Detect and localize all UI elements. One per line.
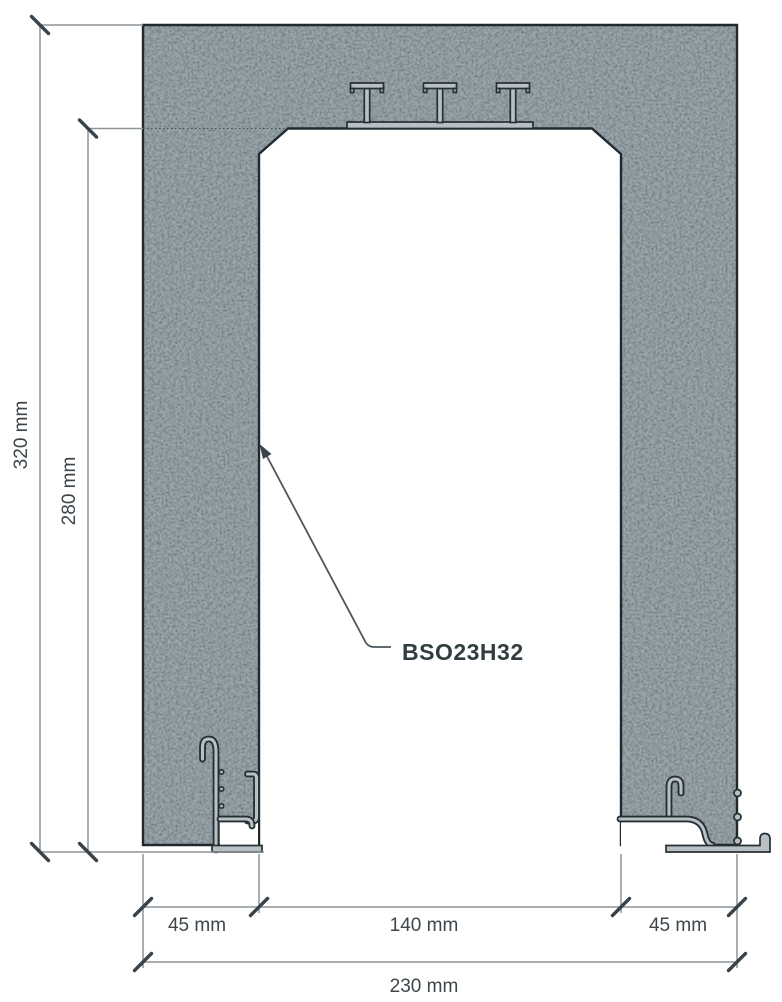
dim-label-overall-width: 230 mm xyxy=(390,976,459,997)
dim-label-right-jamb: 45 mm xyxy=(649,915,707,936)
leader-line xyxy=(262,447,391,647)
t-stud-center-lip-a xyxy=(424,89,427,93)
left-rail-bump-2 xyxy=(219,787,223,791)
t-stud-center-lip-b xyxy=(453,89,456,93)
t-stud-left-lip-a xyxy=(351,89,354,93)
dimension-bottom-widths: 45 mm 140 mm 45 mm 230 mm xyxy=(135,854,746,997)
t-stud-left-web xyxy=(364,89,369,123)
concrete-section xyxy=(143,25,737,845)
left-base-plate xyxy=(212,846,262,853)
dim-label-opening-width: 140 mm xyxy=(390,915,459,936)
left-rail-bump-3 xyxy=(219,804,223,808)
diagram-canvas: 320 mm 280 mm 45 mm 140 mm 45 mm 230 mm … xyxy=(0,0,782,1002)
right-edge-bump-3 xyxy=(734,838,741,845)
concrete-speckle-texture xyxy=(143,25,737,845)
right-edge-bump-1 xyxy=(734,790,741,797)
dim-label-left-jamb: 45 mm xyxy=(168,915,226,936)
left-rail-bump-1 xyxy=(219,770,223,774)
part-annotation-label: BSO23H32 xyxy=(402,639,524,665)
t-stud-right-lip-a xyxy=(497,89,500,93)
t-stud-right-lip-b xyxy=(526,89,529,93)
t-stud-left-lip-b xyxy=(380,89,383,93)
dim-label-overall-height: 320 mm xyxy=(11,401,32,470)
t-stud-center-web xyxy=(437,89,442,123)
t-stud-right-flange xyxy=(497,83,530,89)
t-stud-right-web xyxy=(510,89,515,123)
cross-section-drawing: 320 mm 280 mm 45 mm 140 mm 45 mm 230 mm … xyxy=(0,0,782,1002)
leader-arrowhead-icon xyxy=(260,444,272,459)
part-annotation: BSO23H32 xyxy=(260,444,524,665)
t-stud-left-flange xyxy=(351,83,384,89)
dim-label-opening-height: 280 mm xyxy=(59,457,80,526)
t-stud-center-flange xyxy=(424,83,457,89)
right-edge-bump-2 xyxy=(734,814,741,821)
